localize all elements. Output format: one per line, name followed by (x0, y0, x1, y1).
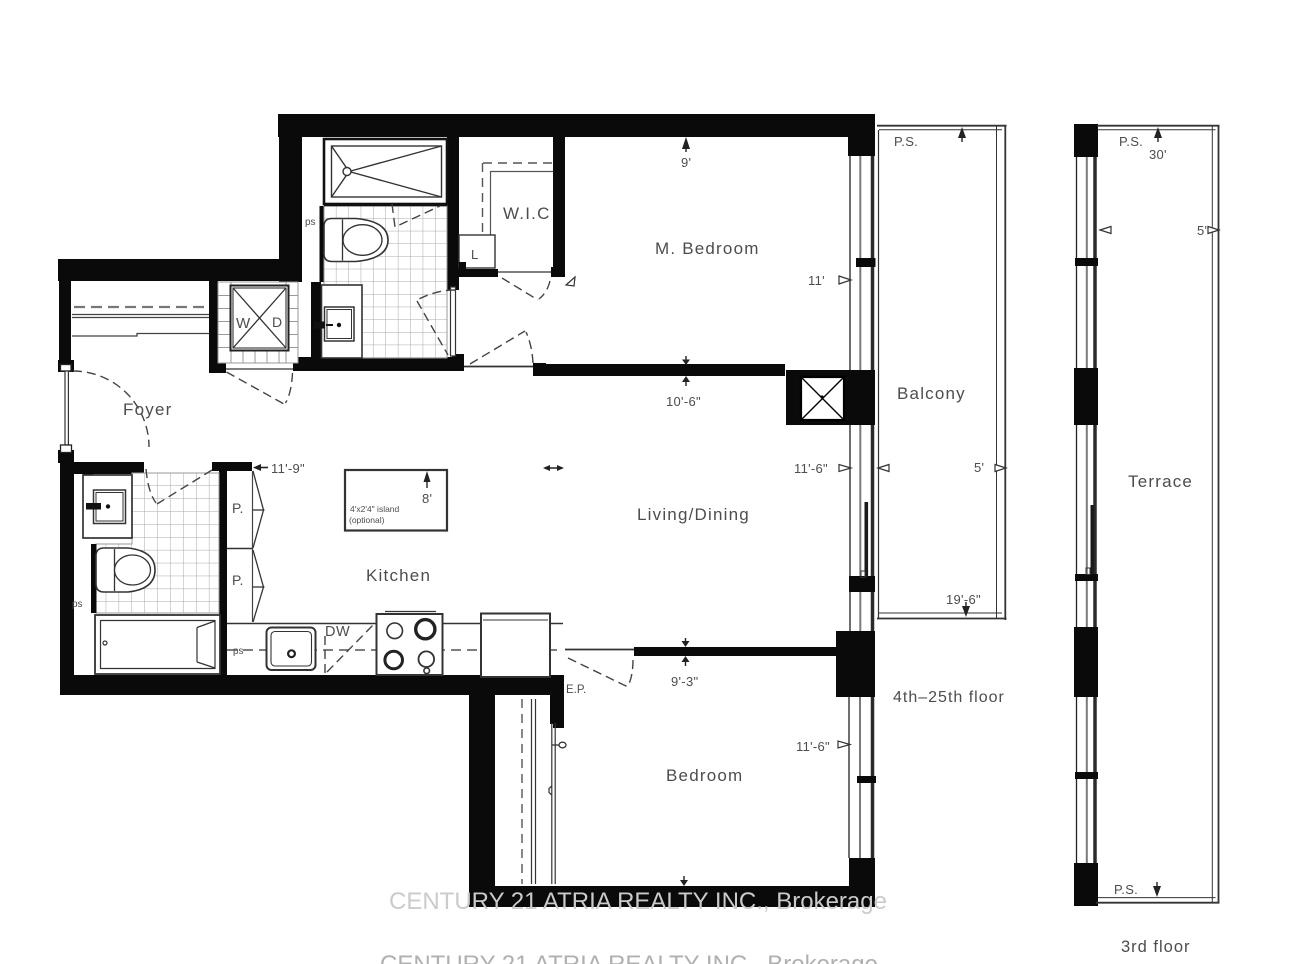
svg-text:W: W (236, 315, 251, 332)
svg-text:9'-3": 9'-3" (671, 674, 698, 689)
svg-text:Balcony: Balcony (897, 384, 966, 403)
svg-text:Kitchen: Kitchen (366, 566, 431, 585)
svg-text:Foyer: Foyer (123, 400, 172, 419)
svg-text:10'-6": 10'-6" (666, 394, 701, 409)
svg-text:CENTURY 21 ATRIA REALTY INC.,: CENTURY 21 ATRIA REALTY INC., Brokerage (380, 951, 878, 964)
svg-text:P.S.: P.S. (894, 134, 918, 149)
svg-text:11'-6": 11'-6" (796, 739, 830, 754)
svg-text:ps: ps (72, 599, 83, 610)
svg-text:ps: ps (233, 646, 244, 657)
svg-text:4th–25th floor: 4th–25th floor (893, 689, 1005, 706)
svg-text:Terrace: Terrace (1128, 472, 1193, 491)
svg-text:P.: P. (232, 572, 243, 588)
svg-text:(optional): (optional) (349, 515, 385, 525)
svg-text:M. Bedroom: M. Bedroom (655, 239, 760, 258)
svg-text:E.P.: E.P. (566, 684, 586, 696)
svg-text:Living/Dining: Living/Dining (637, 505, 750, 524)
svg-text:5': 5' (1197, 223, 1207, 238)
svg-text:P.S.: P.S. (1119, 134, 1143, 149)
svg-text:ps: ps (305, 217, 316, 228)
svg-text:8': 8' (422, 491, 432, 506)
svg-text:5': 5' (974, 460, 984, 475)
svg-text:D: D (272, 314, 282, 330)
svg-text:11': 11' (808, 273, 825, 288)
svg-text:Bedroom: Bedroom (666, 766, 743, 785)
svg-text:L: L (471, 247, 478, 262)
svg-text:11'-9": 11'-9" (271, 461, 305, 476)
svg-text:9': 9' (681, 155, 691, 170)
svg-text:3rd floor: 3rd floor (1121, 938, 1191, 956)
svg-text:30': 30' (1149, 147, 1167, 162)
svg-text:11'-6": 11'-6" (794, 461, 828, 476)
svg-text:CENTURY 21 ATRIA REALTY INC.,: CENTURY 21 ATRIA REALTY INC., Brokerage (389, 888, 887, 915)
svg-text:19'-6": 19'-6" (946, 592, 981, 607)
svg-text:P.S.: P.S. (1114, 882, 1138, 897)
svg-text:4'x2'4" island: 4'x2'4" island (350, 504, 400, 514)
svg-text:DW: DW (325, 624, 350, 640)
svg-text:W.I.C: W.I.C (503, 204, 551, 223)
svg-text:P.: P. (232, 500, 243, 516)
